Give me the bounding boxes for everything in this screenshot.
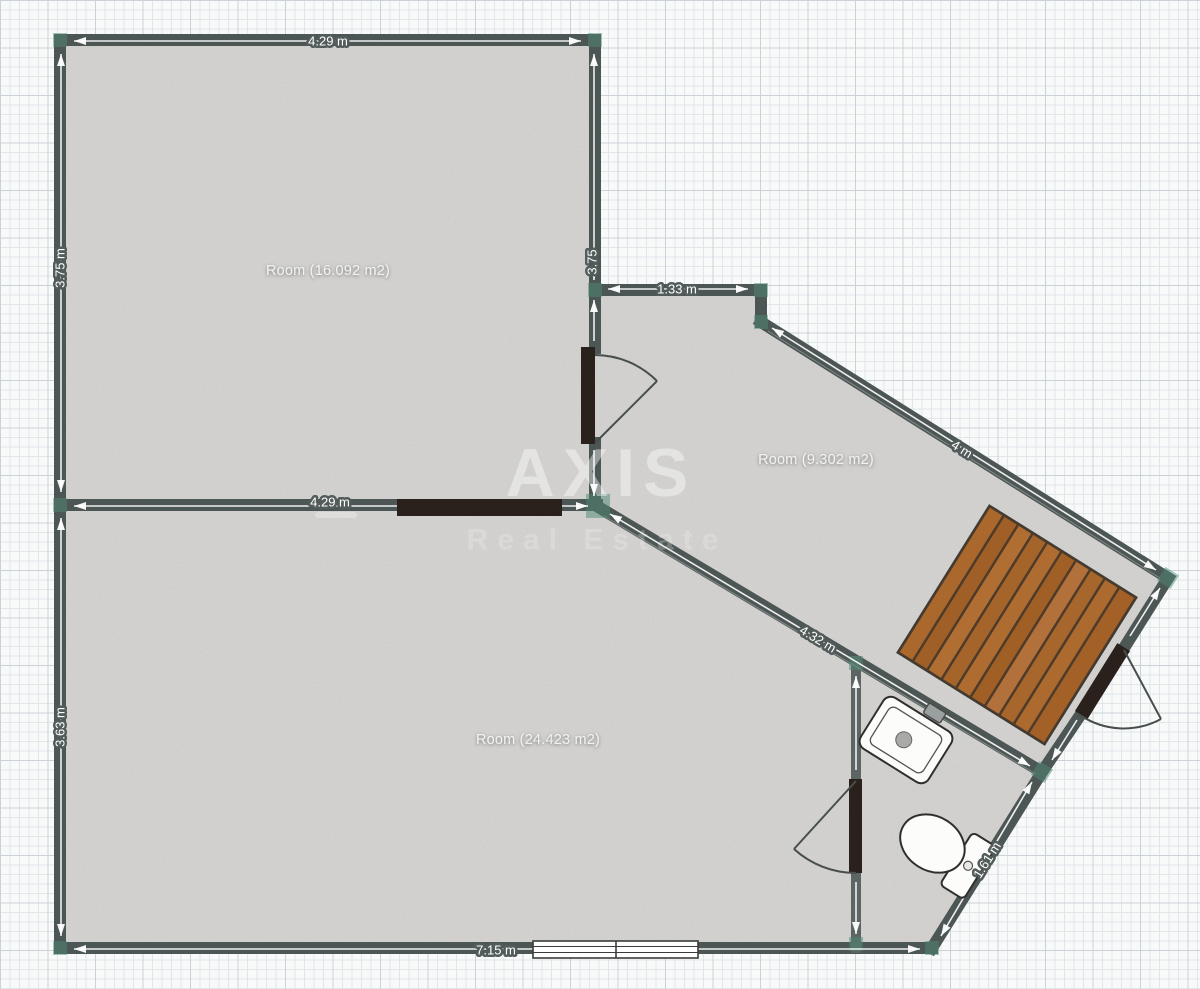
window: [533, 941, 698, 958]
dim-room16-bottom: 4.29 m: [310, 495, 350, 510]
dim-room16-left: 3.75 m: [53, 248, 68, 288]
floorplan-stage: 4.29 m 3.75 m 3.75 4.29 m 1.33 m 4 m 4.3…: [0, 0, 1200, 989]
dim-room16-top: 4.29 m: [308, 34, 348, 49]
dim-room9-top: 1.33 m: [657, 282, 697, 297]
door-bathroom: [849, 779, 862, 873]
dim-sub-label-blur: [315, 512, 357, 518]
dim-room24-left: 3.63 m: [53, 707, 68, 747]
room-label-16: Room (16.092 m2): [266, 263, 390, 279]
dim-room24-bottom: 7.15 m: [476, 943, 516, 958]
room-label-24: Room (24.423 m2): [476, 732, 600, 748]
door-room16-room9: [581, 347, 595, 444]
watermark-subtitle: Real Estate: [467, 524, 728, 557]
watermark: AXIS Real Estate: [467, 435, 728, 557]
watermark-title: AXIS: [506, 435, 697, 511]
dim-room16-right: 3.75: [585, 249, 600, 274]
floor-plan-canvas: 4.29 m 3.75 m 3.75 4.29 m 1.33 m 4 m 4.3…: [0, 0, 1200, 989]
room-label-9: Room (9.302 m2): [758, 452, 874, 468]
